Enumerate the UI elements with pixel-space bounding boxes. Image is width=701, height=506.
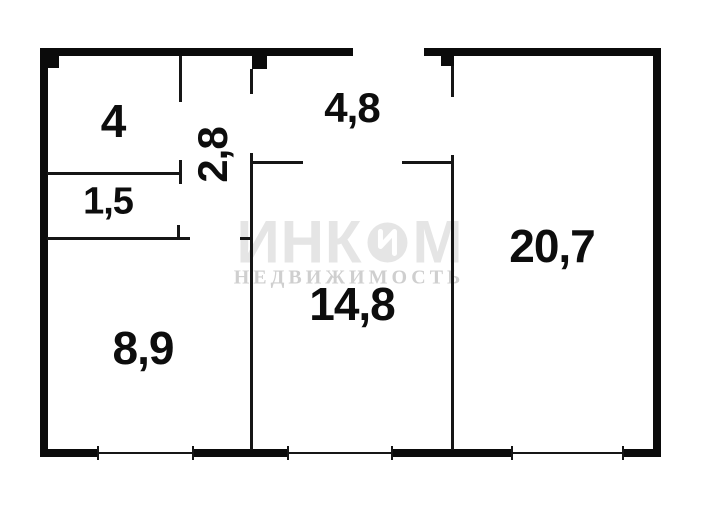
exterior-wall-bottom-segment-3 [392, 449, 512, 457]
partition-corridor-lower [250, 153, 253, 450]
exterior-wall-bottom-segment-2 [193, 449, 288, 457]
partition-corridor-upper [250, 69, 253, 94]
floor-plan: ИНК М НЕДВИЖИМОСТЬ 4 1,5 2, [0, 0, 701, 506]
room-label-1-5: 1,5 [83, 181, 133, 224]
room-label-14-8: 14,8 [309, 277, 395, 331]
partition-room20-lower [451, 155, 454, 450]
window-tick [511, 446, 513, 460]
exterior-wall-bottom-segment-1 [40, 449, 98, 457]
window-tick [97, 446, 99, 460]
partition-room4-closet [47, 172, 181, 175]
partition-hall-room14-right [402, 161, 454, 164]
window-tick [622, 446, 624, 460]
door-frame-tick [179, 160, 182, 184]
partition-room20-upper [451, 66, 454, 97]
partition-hall-room14-left [251, 161, 303, 164]
room-label-8-9: 8,9 [113, 321, 174, 375]
room-label-20-7: 20,7 [509, 219, 595, 273]
door-frame-tick [177, 225, 180, 238]
wall-pillar-hall-junction [441, 54, 454, 66]
partition-closet-room8-9 [47, 237, 190, 240]
incom-logo-icon [366, 220, 410, 264]
exterior-wall-left [40, 48, 48, 457]
exterior-wall-top-right-segment [424, 48, 661, 56]
room-label-2-8: 2,8 [189, 127, 237, 182]
window-room-14-8 [288, 452, 392, 454]
wall-pillar-corridor-junction [252, 56, 267, 69]
exterior-wall-top-left-segment [40, 48, 353, 56]
window-room-20-7 [512, 452, 623, 454]
exterior-wall-right [653, 48, 661, 457]
room-label-4: 4 [101, 94, 126, 148]
partition-room4-corridor [179, 56, 182, 102]
room-label-4-8: 4,8 [324, 84, 379, 132]
window-tick [391, 446, 393, 460]
exterior-wall-bottom-segment-4 [623, 449, 661, 457]
wall-pillar-top-left-corner [47, 56, 59, 68]
window-tick [287, 446, 289, 460]
window-room-8-9 [98, 452, 193, 454]
window-tick [192, 446, 194, 460]
partition-stub-room8-9 [240, 237, 253, 240]
